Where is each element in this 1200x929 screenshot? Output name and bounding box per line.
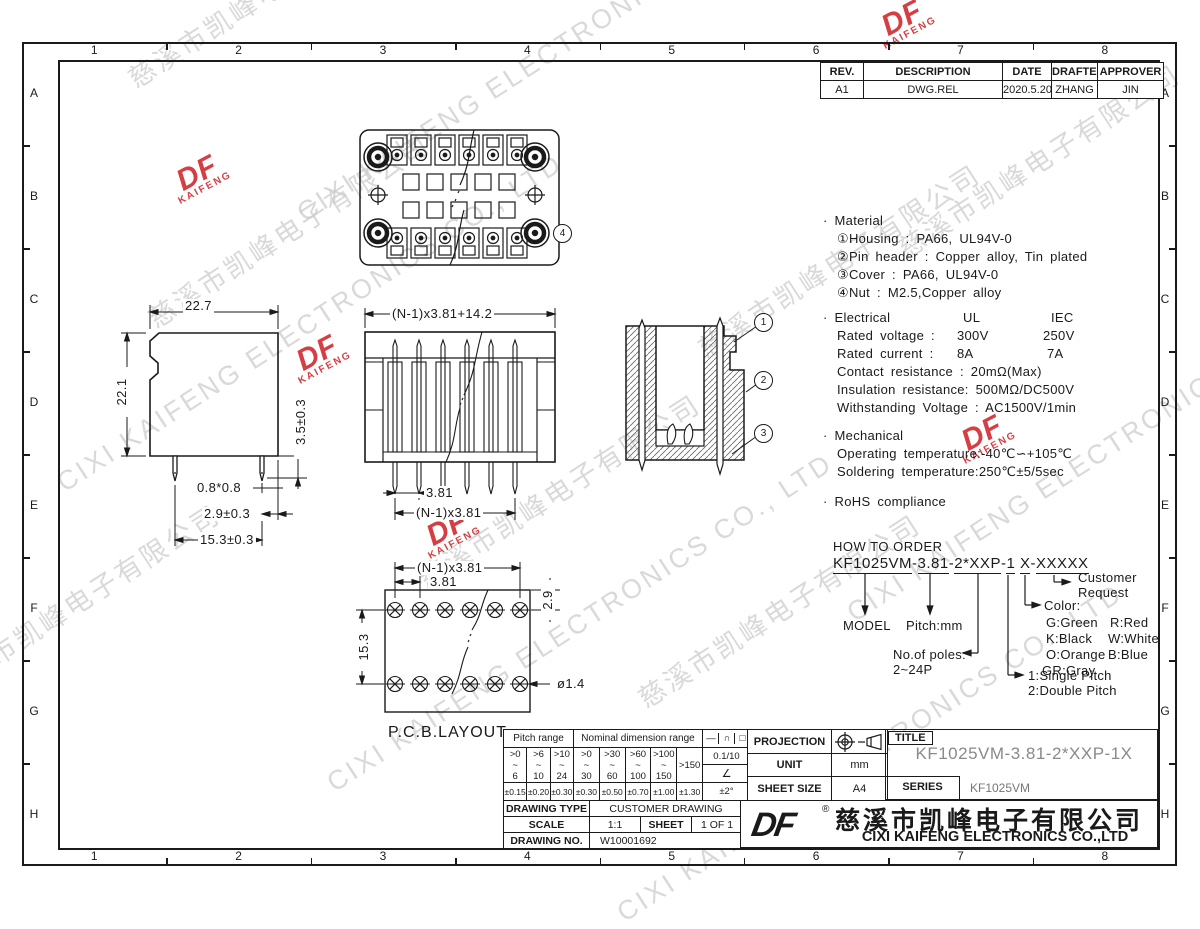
color-gray: GR:Gray (1042, 663, 1095, 678)
pin-right (717, 318, 723, 474)
ruler-label: D (1157, 395, 1173, 409)
ruler-label: B (26, 189, 42, 203)
ruler-tick (1169, 145, 1177, 147)
ruler-label: 3 (375, 849, 391, 863)
ruler-tick (888, 42, 890, 50)
pin-left (639, 320, 645, 470)
nominal-range-header: Nominal dimension range (574, 730, 703, 748)
scale-label: SCALE (504, 817, 590, 833)
projection-label: PROJECTION (748, 730, 832, 754)
dim-pin-square: 0.8*0.8 (195, 481, 243, 495)
tol-value: ±0.30 (550, 783, 573, 801)
electrical-notes: · Electrical UL IEC Rated voltage : 300V… (823, 309, 1153, 417)
dim-front-span: (N-1)x3.81 (414, 506, 483, 520)
ruler-label: 2 (231, 849, 247, 863)
range-cell: >30~60 (599, 748, 625, 783)
material-line: ①Housing : PA66, UL94V-0 (823, 230, 1087, 248)
ul-column-header: UL (963, 309, 980, 327)
company-name-en: CIXI KAIFENG ELECTRONICS CO.,LTD (835, 829, 1155, 845)
mechanical-notes: · Mechanical Operating temperature:-40℃∽… (823, 427, 1072, 481)
dim-front-total: (N-1)x3.81+14.2 (390, 307, 494, 321)
range-cell: >0~6 (504, 748, 527, 783)
material-line: ④Nut : M2.5,Copper alloy (823, 284, 1087, 302)
ruler-label: H (26, 807, 42, 821)
sheet-size-value: A4 (832, 777, 888, 801)
ruler-label: B (1157, 189, 1173, 203)
angle-tolerance: ±2° (703, 783, 751, 801)
ruler-label: G (26, 704, 42, 718)
material-title: · Material (823, 212, 1087, 230)
rated-voltage-ul: 300V (957, 327, 989, 345)
rated-current-ul: 8A (957, 345, 974, 363)
ruler-label: E (1157, 498, 1173, 512)
dim-side-width: 22.7 (183, 299, 214, 313)
revision-table: REV. DESCRIPTION DATE DRAFTER APPROVER A… (820, 62, 1164, 99)
ruler-tick (744, 858, 746, 866)
arc-symbol: ∩ (719, 733, 735, 744)
title-value: KF1025VM-3.81-2*XXP-1X (895, 744, 1153, 764)
callout-2: 2 (754, 371, 773, 390)
section-view-drawing (612, 312, 762, 482)
color-green: G:Green (1046, 615, 1098, 630)
rated-current-iec: 7A (1047, 345, 1064, 363)
ruler-label: G (1157, 704, 1173, 718)
dim-pin-offset: 2.9±0.3 (202, 507, 252, 521)
ruler-tick (744, 42, 746, 50)
ruler-tick (22, 248, 30, 250)
dim-pcb-span: (N-1)x3.81 (415, 561, 484, 575)
material-line: ③Cover : PA66, UL94V-0 (823, 266, 1087, 284)
tolerance-table: Pitch range Nominal dimension range —∩□ … (503, 729, 751, 801)
ruler-tick (311, 42, 313, 50)
angle-symbol: ∠ (703, 765, 751, 783)
contact-resistance: Contact resistance : 20mΩ(Max) (823, 363, 1153, 381)
ruler-tick (1169, 351, 1177, 353)
date-value: 2020.5.20 (1003, 81, 1052, 99)
mechanical-title: · Mechanical (823, 427, 1072, 445)
range-cell: >6~10 (527, 748, 550, 783)
order-double-pitch: 2:Double Pitch (1028, 683, 1117, 698)
title-label: TITLE (888, 731, 933, 745)
ruler-label: 4 (519, 849, 535, 863)
ruler-tick (22, 557, 30, 559)
dim-pcb-pitch: 3.81 (428, 575, 459, 589)
drawing-no-value: W10001692 (590, 833, 743, 849)
order-color-label: Color: (1044, 598, 1080, 613)
ruler-label: 5 (664, 849, 680, 863)
series-label: SERIES (885, 781, 960, 793)
pcb-holes (385, 603, 530, 692)
dim-pin-span: 15.3±0.3 (198, 533, 256, 547)
dim-side-height: 22.1 (115, 367, 129, 417)
front-view-drawing (350, 300, 570, 525)
ruler-label: 7 (952, 849, 968, 863)
sheet-value: 1 OF 1 (692, 817, 743, 833)
order-poles-label: No.of poles: (893, 647, 966, 662)
order-request-label: Request (1078, 585, 1129, 600)
flatness-tolerance: 0.1/10 (703, 748, 751, 765)
tol-value: ±0.30 (574, 783, 600, 801)
projection-symbol-cell (832, 730, 888, 754)
material-notes: · Material ①Housing : PA66, UL94V-0 ②Pin… (823, 212, 1087, 302)
geometry-symbols-cell: —∩□ (703, 730, 751, 748)
ruler-tick (455, 858, 457, 866)
tol-value: ±0.20 (527, 783, 550, 801)
ruler-tick (311, 858, 313, 866)
ruler-label: D (26, 395, 42, 409)
date-header: DATE (1003, 63, 1052, 81)
ruler-tick (22, 454, 30, 456)
color-red: R:Red (1110, 615, 1148, 630)
ruler-tick (1169, 557, 1177, 559)
ruler-tick (22, 145, 30, 147)
dim-pcb-hole-dia: ø1.4 (555, 677, 587, 691)
dim-pcb-row-spacing: 15.3 (357, 623, 371, 671)
rated-voltage-iec: 250V (1043, 327, 1075, 345)
ruler-tick (600, 42, 602, 50)
top-view-drawing (352, 125, 567, 270)
ruler-label: F (26, 601, 42, 615)
material-line: ②Pin header : Copper alloy, Tin plated (823, 248, 1087, 266)
dim-pcb-edge-offset: 2.9 (541, 580, 555, 620)
ruler-tick (22, 660, 30, 662)
ruler-label: C (26, 292, 42, 306)
drafter-value: ZHANG (1052, 81, 1098, 99)
description-header: DESCRIPTION (864, 63, 1003, 81)
ruler-tick (1169, 660, 1177, 662)
drafter-header: DRAFTER (1052, 63, 1098, 81)
callout-1: 1 (754, 313, 773, 332)
ruler-label: 6 (808, 43, 824, 57)
ruler-label: 3 (375, 43, 391, 57)
tol-value: ±1.30 (677, 783, 703, 801)
range-cell: >0~30 (574, 748, 600, 783)
tol-value: ±0.50 (599, 783, 625, 801)
pin-towers (388, 340, 522, 494)
ruler-label: A (26, 86, 42, 100)
color-blue: B:Blue (1108, 647, 1148, 662)
scale-value: 1:1 (590, 817, 641, 833)
ruler-label: 4 (519, 43, 535, 57)
sheet-size-label: SHEET SIZE (748, 777, 832, 801)
drawing-no-label: DRAWING NO. (504, 833, 590, 849)
callout-4: 4 (553, 224, 572, 243)
description-value: DWG.REL (864, 81, 1003, 99)
ruler-tick (600, 858, 602, 866)
ruler-label: 1 (86, 43, 102, 57)
tol-value: ±0.70 (625, 783, 651, 801)
insulation-resistance: Insulation resistance: 500MΩ/DC500V (823, 381, 1153, 399)
ruler-label: H (1157, 807, 1173, 821)
break-lines (446, 332, 482, 462)
projection-table: PROJECTION UNIT mm SHEET SIZE A4 (747, 729, 888, 801)
drawing-type-label: DRAWING TYPE (504, 801, 590, 817)
ruler-label: 2 (231, 43, 247, 57)
ruler-tick (1169, 248, 1177, 250)
first-angle-projection-icon (835, 733, 885, 751)
ruler-tick (22, 763, 30, 765)
tol-value: ±0.15 (504, 783, 527, 801)
iec-column-header: IEC (1051, 309, 1074, 327)
pcb-layout-label: P.C.B.LAYOUT (388, 724, 507, 742)
how-to-order-title: HOW TO ORDER (833, 539, 943, 554)
rohs-note: · RoHS compliance (823, 493, 946, 511)
color-orange: O:Orange (1046, 647, 1105, 662)
color-black: K:Black (1046, 631, 1092, 646)
company-logo-df: DF (749, 806, 797, 845)
approver-value: JIN (1098, 81, 1164, 99)
dim-pin-height: 3.5±0.3 (294, 385, 308, 459)
ruler-label: 5 (664, 43, 680, 57)
pin-contacts-top (387, 135, 527, 165)
straightness-symbol: — (703, 733, 719, 744)
callout-3: 3 (754, 424, 773, 443)
pitch-range-header: Pitch range (504, 730, 574, 748)
rev-value: A1 (821, 81, 864, 99)
drawing-type-value: CUSTOMER DRAWING (590, 801, 743, 817)
withstanding-voltage: Withstanding Voltage : AC1500V/1min (823, 399, 1153, 417)
operating-temperature: Operating temperature:-40℃∽+105℃ (823, 445, 1072, 463)
order-model-label: MODEL (843, 618, 891, 633)
soldering-temperature: Soldering temperature:250℃±5/5sec (823, 463, 1072, 481)
ruler-label: 7 (952, 43, 968, 57)
ruler-tick (1169, 454, 1177, 456)
ruler-tick (166, 42, 168, 50)
unit-value: mm (832, 754, 888, 777)
ruler-tick (455, 42, 457, 50)
ruler-label: 8 (1097, 849, 1113, 863)
break-lines (450, 130, 474, 265)
approver-header: APPROVER (1098, 63, 1164, 81)
rated-current-label: Rated current : (837, 346, 934, 361)
break-lines (452, 590, 488, 694)
ruler-tick (166, 858, 168, 866)
registered-mark: ® (822, 804, 829, 815)
ruler-label: E (26, 498, 42, 512)
electrical-title: · Electrical (823, 310, 890, 325)
unit-label: UNIT (748, 754, 832, 777)
ruler-label: 8 (1097, 43, 1113, 57)
rev-header: REV. (821, 63, 864, 81)
color-white: W:White (1108, 631, 1159, 646)
drawing-info-table: DRAWING TYPE CUSTOMER DRAWING SCALE 1:1 … (503, 800, 743, 849)
tol-value: ±1.00 (651, 783, 677, 801)
sheet-label: SHEET (641, 817, 692, 833)
ruler-tick (1169, 763, 1177, 765)
ruler-tick (22, 351, 30, 353)
order-pitch-label: Pitch:mm (906, 618, 963, 633)
order-poles-range: 2~24P (893, 662, 932, 677)
series-value: KF1025VM (970, 781, 1030, 795)
rated-voltage-label: Rated voltage : (837, 328, 935, 343)
ruler-label: 6 (808, 849, 824, 863)
range-cell-last: >150 (677, 748, 703, 783)
ruler-tick (888, 858, 890, 866)
solder-pads (403, 174, 515, 218)
range-cell: >100~150 (651, 748, 677, 783)
engineering-drawing-sheet: { "frame": { "cols": ["1","2","3","4","5… (0, 0, 1200, 910)
ruler-label: C (1157, 292, 1173, 306)
ruler-tick (1033, 858, 1035, 866)
dim-front-pitch: 3.81 (424, 486, 455, 500)
ruler-tick (1033, 42, 1035, 50)
range-cell: >10~24 (550, 748, 573, 783)
range-cell: >60~100 (625, 748, 651, 783)
order-customer-label: Customer (1078, 570, 1137, 585)
ruler-label: 1 (86, 849, 102, 863)
